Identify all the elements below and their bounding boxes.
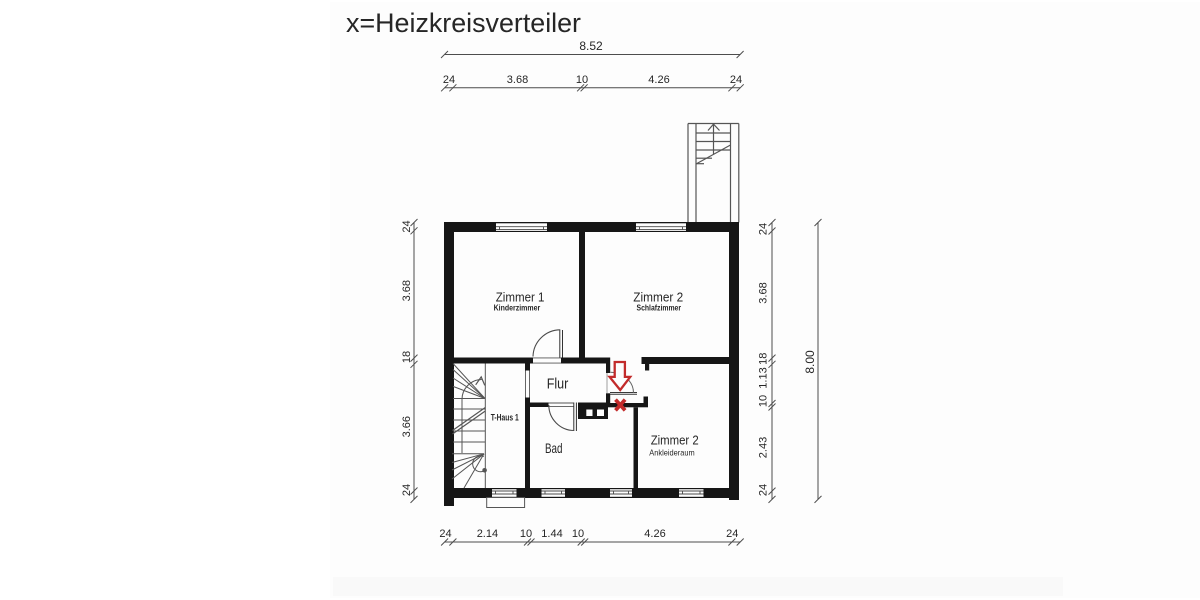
svg-text:1.13: 1.13 xyxy=(758,367,770,388)
svg-text:3.68: 3.68 xyxy=(401,280,413,301)
svg-text:24: 24 xyxy=(726,528,738,540)
svg-text:10: 10 xyxy=(520,528,532,540)
svg-text:Ankleideraum: Ankleideraum xyxy=(649,447,694,457)
svg-text:Zimmer 2: Zimmer 2 xyxy=(651,433,699,448)
svg-text:10: 10 xyxy=(572,528,584,540)
svg-text:24: 24 xyxy=(443,74,455,86)
svg-text:T-Haus 1: T-Haus 1 xyxy=(491,413,519,423)
svg-text:Schlafzimmer: Schlafzimmer xyxy=(637,303,682,313)
svg-text:4.26: 4.26 xyxy=(648,74,669,86)
svg-text:Kinderzimmer: Kinderzimmer xyxy=(494,303,541,313)
svg-text:24: 24 xyxy=(439,528,451,540)
svg-text:10: 10 xyxy=(758,395,770,407)
svg-text:8.52: 8.52 xyxy=(579,39,603,53)
svg-text:1.44: 1.44 xyxy=(541,528,562,540)
svg-text:Flur: Flur xyxy=(547,375,569,392)
svg-text:10: 10 xyxy=(576,74,588,86)
svg-text:Bad: Bad xyxy=(545,440,563,456)
svg-text:24: 24 xyxy=(758,223,770,235)
svg-text:2.43: 2.43 xyxy=(758,437,770,458)
svg-text:18: 18 xyxy=(401,351,413,363)
svg-text:=Heizkreisverteiler: =Heizkreisverteiler xyxy=(360,8,582,38)
svg-text:24: 24 xyxy=(730,74,742,86)
svg-text:18: 18 xyxy=(758,353,770,365)
svg-text:8.00: 8.00 xyxy=(803,350,817,374)
svg-text:3.68: 3.68 xyxy=(507,74,528,86)
svg-text:24: 24 xyxy=(401,484,413,496)
svg-text:4.26: 4.26 xyxy=(644,528,665,540)
svg-text:24: 24 xyxy=(758,484,770,496)
svg-text:x: x xyxy=(346,8,360,38)
svg-text:2.14: 2.14 xyxy=(477,528,498,540)
svg-text:24: 24 xyxy=(401,220,413,232)
svg-text:3.68: 3.68 xyxy=(758,282,770,303)
svg-text:3.66: 3.66 xyxy=(401,416,413,437)
